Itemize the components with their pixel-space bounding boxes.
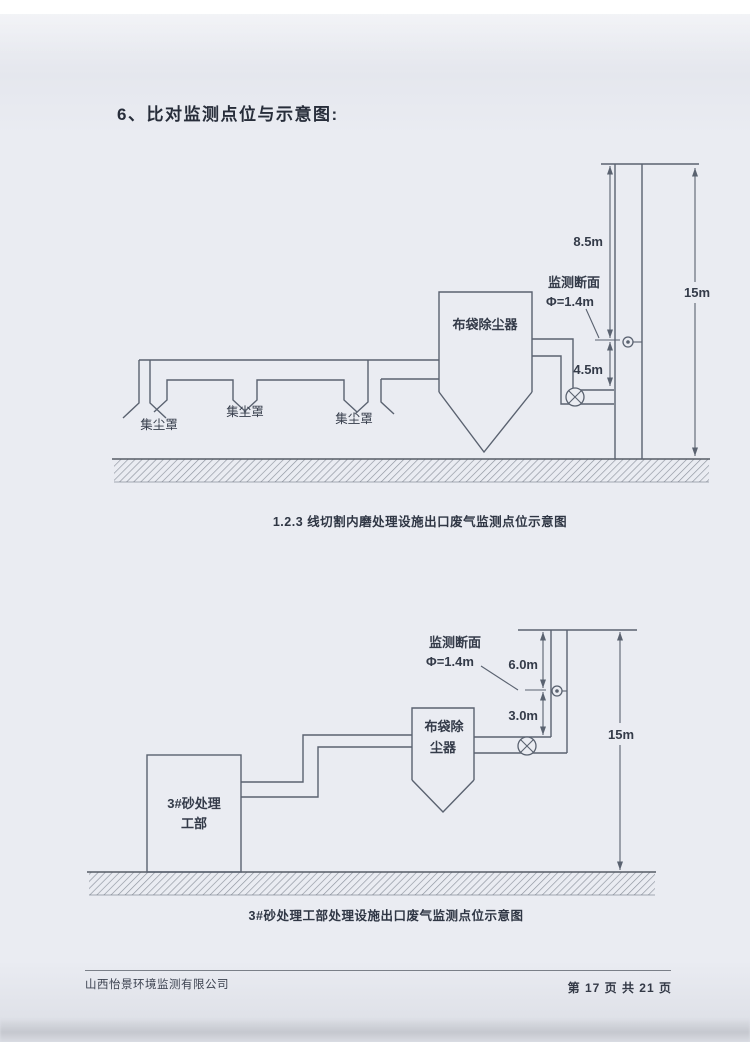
baghouse-1-label: 布袋除尘器 (452, 317, 518, 332)
dimension-8-5m: 8.5m (573, 166, 613, 338)
leader-line-1 (586, 309, 599, 338)
dimension-3-0m: 3.0m (508, 692, 546, 735)
dimension-15m-1: 15m (684, 168, 710, 456)
valve-icon-1 (566, 388, 584, 406)
baghouse-2-label-line1: 布袋除 (424, 719, 464, 734)
hood-2-label: 集尘罩 (226, 404, 264, 419)
scanned-page: 6、比对监测点位与示意图: (0, 0, 750, 1061)
dim-15m-2-label: 15m (608, 727, 634, 742)
dim-15m-1-label: 15m (684, 285, 710, 300)
dim-4-5m-label: 4.5m (573, 362, 603, 377)
baghouse-2-label-line2: 尘器 (430, 740, 457, 755)
baghouse-1: 布袋除尘器 (439, 292, 532, 452)
scan-artifact-band (0, 1018, 750, 1044)
inlet-duct-2 (241, 735, 412, 797)
dim-8-5m-label: 8.5m (573, 234, 603, 249)
ground-1 (112, 459, 710, 482)
section-label-1: 监测断面 (548, 275, 600, 290)
section-label-2: 监测断面 (429, 635, 481, 650)
workshop-box: 3#砂处理 工部 (147, 755, 241, 872)
footer-company: 山西怡景环境监测有限公司 (85, 976, 229, 992)
baghouse-2: 布袋除 尘器 (412, 708, 474, 812)
scan-bottom-margin (0, 1042, 750, 1061)
diagram-1-caption: 1.2.3 线切割内磨处理设施出口废气监测点位示意图 (170, 511, 670, 530)
dimension-6-0m: 6.0m (508, 632, 546, 688)
diameter-label-1: Φ=1.4m (546, 294, 594, 309)
dim-6-0m-label: 6.0m (508, 657, 538, 672)
diameter-label-2: Φ=1.4m (426, 654, 474, 669)
valve-icon-2 (518, 737, 536, 755)
stack-1 (601, 164, 699, 459)
footer-page-number: 第 17 页 共 21 页 (472, 979, 672, 996)
monitoring-port-1 (595, 337, 642, 347)
footer-divider (85, 970, 671, 971)
ground-2 (87, 872, 656, 895)
hood-3-label: 集尘罩 (335, 411, 373, 426)
diagram-1: 集尘罩 集尘罩 集尘罩 布袋除尘器 监测断面 Φ=1.4m (0, 0, 750, 540)
hood-1-label: 集尘罩 (140, 417, 178, 432)
dimension-15m-2: 15m (608, 632, 634, 870)
monitoring-port-2 (525, 686, 567, 696)
diagram-2: 3#砂处理 工部 布袋除 尘器 (0, 560, 750, 960)
diagram-2-caption: 3#砂处理工部处理设施出口废气监测点位示意图 (136, 905, 636, 924)
collection-duct (123, 360, 439, 418)
dimension-4-5m: 4.5m (573, 342, 613, 386)
workshop-label-line1: 3#砂处理 (167, 796, 220, 811)
workshop-label-line2: 工部 (181, 816, 207, 831)
dim-3-0m-label: 3.0m (508, 708, 538, 723)
dust-hood-3 (355, 360, 394, 414)
